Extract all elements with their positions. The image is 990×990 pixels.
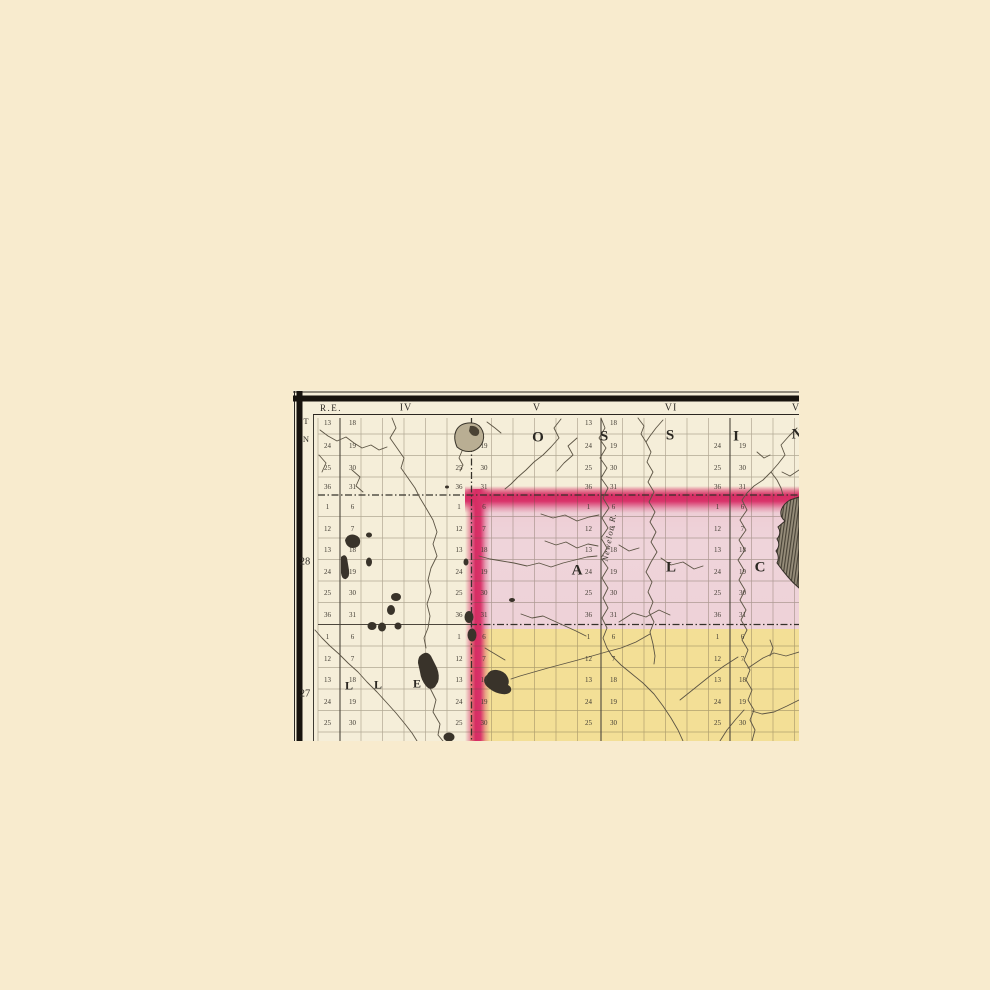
section-number: 24 bbox=[714, 568, 721, 576]
section-number: 7 bbox=[351, 655, 355, 663]
river bbox=[680, 657, 738, 700]
section-number: 25 bbox=[714, 719, 721, 727]
section-number: 6 bbox=[351, 503, 355, 511]
lake bbox=[444, 733, 455, 742]
county-letter: S bbox=[666, 428, 674, 445]
section-number: 24 bbox=[714, 698, 721, 706]
section-number: 6 bbox=[741, 633, 745, 641]
section-number: 18 bbox=[349, 546, 356, 554]
section-number: 13 bbox=[585, 546, 592, 554]
section-number: 31 bbox=[481, 611, 488, 619]
river bbox=[748, 640, 799, 668]
lake bbox=[391, 593, 401, 601]
section-number: 30 bbox=[349, 719, 356, 727]
river bbox=[485, 648, 505, 660]
section-number: 25 bbox=[456, 719, 463, 727]
map-sheet: R.E. T N Newelon R. IVVVIV2827OSSINALCLL… bbox=[293, 390, 799, 741]
section-number: 1 bbox=[457, 633, 461, 641]
section-number: 24 bbox=[456, 568, 463, 576]
section-number: 24 bbox=[324, 568, 331, 576]
section-number: 25 bbox=[324, 464, 331, 472]
section-number: 19 bbox=[481, 698, 488, 706]
section-number: 30 bbox=[481, 589, 488, 597]
lake bbox=[378, 623, 386, 632]
section-number: 1 bbox=[587, 633, 591, 641]
section-number: 12 bbox=[714, 655, 721, 663]
section-number: 24 bbox=[324, 442, 331, 450]
section-number: 12 bbox=[714, 525, 721, 533]
section-number: 25 bbox=[714, 464, 721, 472]
section-number: 25 bbox=[324, 719, 331, 727]
section-number: 1 bbox=[587, 503, 591, 511]
section-number: 24 bbox=[585, 698, 592, 706]
section-number: 13 bbox=[324, 546, 331, 554]
section-number: 13 bbox=[324, 419, 331, 427]
section-number: 7 bbox=[612, 525, 616, 533]
section-number: 25 bbox=[714, 589, 721, 597]
county-letter: C bbox=[755, 560, 766, 577]
county-letter: E bbox=[413, 677, 421, 692]
county-letter: L bbox=[666, 560, 676, 577]
section-number: 30 bbox=[739, 464, 746, 472]
river bbox=[541, 514, 599, 521]
section-number: 12 bbox=[324, 525, 331, 533]
section-number: 7 bbox=[741, 525, 745, 533]
river bbox=[619, 610, 670, 622]
rivers bbox=[315, 418, 799, 741]
section-number: 36 bbox=[456, 483, 463, 491]
county-letter: N bbox=[792, 427, 799, 444]
section-number: 12 bbox=[324, 655, 331, 663]
county-dashdot-lines bbox=[318, 418, 799, 741]
township-row-number: 28 bbox=[300, 557, 311, 568]
lake bbox=[465, 611, 474, 623]
section-number: 13 bbox=[456, 546, 463, 554]
section-number: 31 bbox=[349, 483, 356, 491]
section-number: 30 bbox=[610, 719, 617, 727]
range-numeral: IV bbox=[400, 403, 413, 414]
section-number: 24 bbox=[585, 568, 592, 576]
section-number: 31 bbox=[610, 483, 617, 491]
section-number: 31 bbox=[739, 611, 746, 619]
section-number: 6 bbox=[741, 503, 745, 511]
section-number: 31 bbox=[481, 483, 488, 491]
section-number: 13 bbox=[585, 419, 592, 427]
section-number: 1 bbox=[326, 503, 330, 511]
range-numeral: V bbox=[533, 403, 541, 414]
section-number: 31 bbox=[349, 611, 356, 619]
section-number: 36 bbox=[324, 611, 331, 619]
range-numeral: V bbox=[792, 403, 799, 414]
section-number: 18 bbox=[610, 546, 617, 554]
section-number: 13 bbox=[714, 676, 721, 684]
section-number: 12 bbox=[585, 655, 592, 663]
lake bbox=[484, 670, 511, 694]
section-number: 18 bbox=[739, 546, 746, 554]
section-number: 6 bbox=[482, 503, 486, 511]
lake bbox=[395, 623, 402, 630]
river bbox=[619, 545, 703, 569]
section-number: 1 bbox=[716, 503, 720, 511]
lake bbox=[341, 555, 349, 579]
section-number: 24 bbox=[585, 442, 592, 450]
section-number: 6 bbox=[612, 633, 616, 641]
river bbox=[511, 634, 650, 679]
section-number: 7 bbox=[482, 655, 486, 663]
lake bbox=[418, 653, 439, 689]
section-number: 19 bbox=[739, 698, 746, 706]
section-number: 24 bbox=[324, 698, 331, 706]
section-number: 36 bbox=[585, 611, 592, 619]
lake bbox=[368, 622, 377, 630]
township-lines bbox=[318, 418, 730, 741]
section-number: 36 bbox=[585, 483, 592, 491]
section-number: 19 bbox=[349, 568, 356, 576]
township-header-t: T bbox=[303, 416, 308, 426]
lake-hatched bbox=[776, 497, 799, 588]
section-number: 12 bbox=[456, 525, 463, 533]
range-numeral: VI bbox=[665, 403, 678, 414]
section-number: 18 bbox=[481, 546, 488, 554]
section-number: 19 bbox=[481, 442, 488, 450]
river bbox=[638, 418, 663, 442]
section-number: 25 bbox=[456, 464, 463, 472]
section-number: 18 bbox=[481, 676, 488, 684]
river bbox=[557, 438, 577, 471]
lake-large bbox=[455, 423, 484, 452]
section-number: 6 bbox=[612, 503, 616, 511]
section-number: 19 bbox=[481, 568, 488, 576]
section-number: 30 bbox=[349, 589, 356, 597]
section-number: 12 bbox=[585, 525, 592, 533]
county-letter: O bbox=[532, 430, 544, 447]
section-number: 13 bbox=[714, 546, 721, 554]
section-number: 1 bbox=[457, 503, 461, 511]
section-number: 19 bbox=[739, 568, 746, 576]
section-number: 36 bbox=[714, 611, 721, 619]
section-number: 19 bbox=[610, 568, 617, 576]
map-canvas: R.E. T N Newelon R. IVVVIV2827OSSINALCLL… bbox=[0, 0, 990, 990]
river bbox=[390, 418, 437, 648]
lake bbox=[464, 559, 469, 566]
township-header-n: N bbox=[303, 434, 309, 444]
section-number: 25 bbox=[324, 589, 331, 597]
section-number: 1 bbox=[716, 633, 720, 641]
section-number: 7 bbox=[741, 655, 745, 663]
section-number: 18 bbox=[610, 676, 617, 684]
section-number: 30 bbox=[481, 719, 488, 727]
section-number: 36 bbox=[456, 611, 463, 619]
section-number: 12 bbox=[456, 655, 463, 663]
section-number: 31 bbox=[739, 483, 746, 491]
section-number: 18 bbox=[610, 419, 617, 427]
section-number: 13 bbox=[585, 676, 592, 684]
section-number: 18 bbox=[349, 676, 356, 684]
section-grid bbox=[318, 418, 799, 741]
section-number: 19 bbox=[349, 698, 356, 706]
section-number: 19 bbox=[739, 442, 746, 450]
lake bbox=[366, 533, 372, 538]
section-number: 25 bbox=[585, 719, 592, 727]
lake bbox=[445, 486, 449, 489]
section-number: 36 bbox=[324, 483, 331, 491]
map-sheet-inner: R.E. T N Newelon R. IVVVIV2827OSSINALCLL… bbox=[293, 390, 799, 741]
river bbox=[646, 442, 657, 664]
section-number: 36 bbox=[714, 483, 721, 491]
section-number: 18 bbox=[739, 676, 746, 684]
river bbox=[430, 688, 443, 741]
section-number: 7 bbox=[612, 655, 616, 663]
section-number: 19 bbox=[610, 442, 617, 450]
river bbox=[752, 700, 799, 714]
section-number: 25 bbox=[585, 589, 592, 597]
section-number: 1 bbox=[326, 633, 330, 641]
map-engraving bbox=[293, 390, 799, 741]
section-grid-line bbox=[318, 418, 799, 741]
section-number: 7 bbox=[482, 525, 486, 533]
section-number: 25 bbox=[585, 464, 592, 472]
section-number: 24 bbox=[714, 442, 721, 450]
section-number: 19 bbox=[349, 442, 356, 450]
section-number: 30 bbox=[610, 589, 617, 597]
section-number: 30 bbox=[481, 464, 488, 472]
section-number: 6 bbox=[351, 633, 355, 641]
section-number: 30 bbox=[610, 464, 617, 472]
lake bbox=[387, 605, 395, 615]
range-header-label: R.E. bbox=[320, 403, 342, 413]
section-number: 13 bbox=[456, 676, 463, 684]
county-letter: L bbox=[374, 678, 382, 693]
section-number: 30 bbox=[349, 464, 356, 472]
section-number: 30 bbox=[739, 719, 746, 727]
section-number: 18 bbox=[349, 419, 356, 427]
lake bbox=[468, 629, 477, 642]
lake bbox=[509, 598, 515, 602]
section-number: 24 bbox=[456, 698, 463, 706]
section-number: 6 bbox=[482, 633, 486, 641]
county-letter: A bbox=[572, 563, 583, 580]
section-number: 25 bbox=[456, 589, 463, 597]
section-number: 7 bbox=[351, 525, 355, 533]
lake bbox=[366, 558, 372, 567]
section-number: 19 bbox=[610, 698, 617, 706]
section-number: 30 bbox=[739, 589, 746, 597]
section-number: 13 bbox=[324, 676, 331, 684]
section-number: 31 bbox=[610, 611, 617, 619]
township-row-number: 27 bbox=[300, 689, 311, 700]
county-letter: S bbox=[600, 429, 608, 446]
